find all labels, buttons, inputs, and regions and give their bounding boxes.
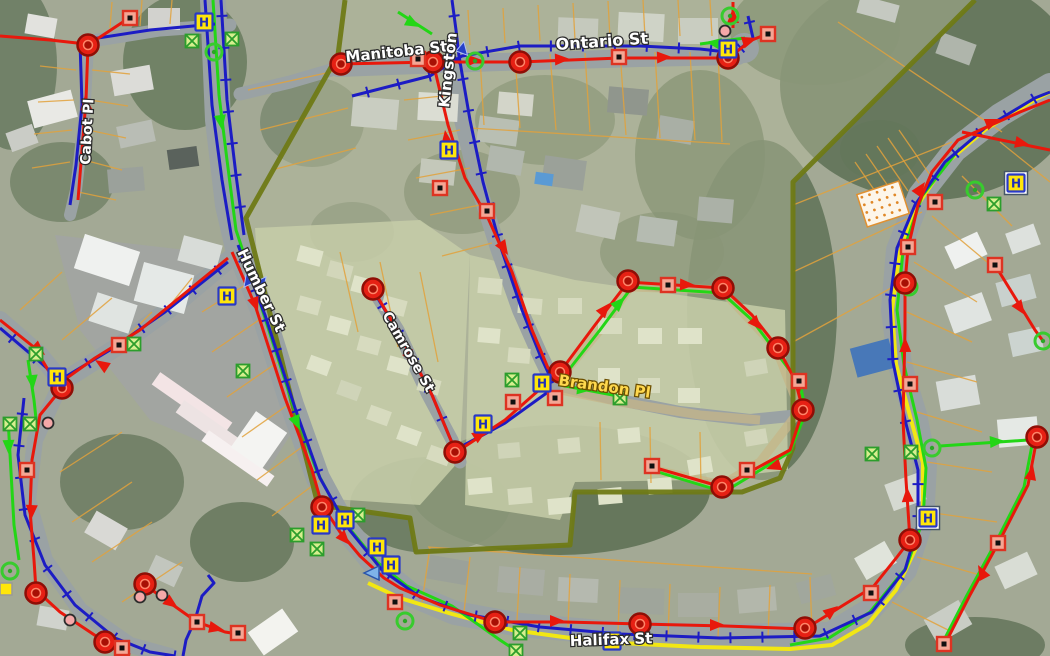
vegetation-patch <box>60 434 184 530</box>
node-inner <box>636 620 645 629</box>
building-roof <box>507 487 532 505</box>
valve-icon[interactable] <box>4 418 17 431</box>
service-point-icon[interactable] <box>388 595 402 609</box>
node-inner <box>801 624 810 633</box>
yellow-box <box>0 583 12 595</box>
service-dot <box>797 379 802 384</box>
service-point-icon[interactable] <box>190 615 204 629</box>
valve-icon[interactable] <box>311 543 324 556</box>
hydrant-letter: H <box>723 43 733 57</box>
hydrant-icon[interactable]: H <box>219 288 236 305</box>
hydrant-icon[interactable]: H <box>383 557 400 574</box>
building-roof <box>617 427 640 444</box>
building-roof <box>477 327 500 344</box>
valve-icon[interactable] <box>237 365 250 378</box>
service-tick <box>886 327 897 328</box>
building-roof <box>737 586 777 613</box>
building-roof <box>167 146 199 170</box>
service-dot <box>485 209 490 214</box>
manhole-node-icon[interactable] <box>713 278 734 299</box>
service-dot <box>128 16 133 21</box>
service-dot <box>393 600 398 605</box>
valve-icon[interactable] <box>514 627 527 640</box>
manhole-node-icon[interactable] <box>768 338 789 359</box>
node-inner <box>451 448 460 457</box>
manhole-node-icon[interactable] <box>795 618 816 639</box>
building-roof <box>618 587 665 615</box>
manhole-node-icon[interactable] <box>895 273 916 294</box>
service-dot <box>650 464 655 469</box>
manhole-node-icon[interactable] <box>510 52 531 73</box>
valve-icon[interactable] <box>30 348 43 361</box>
building-roof <box>636 215 677 246</box>
service-tick <box>216 16 227 17</box>
node-inner <box>901 279 910 288</box>
hydrant-letter: H <box>537 377 547 391</box>
vegetation-patch <box>10 142 114 222</box>
hydrant-icon[interactable]: H <box>196 14 213 31</box>
hydrant-letter: H <box>372 541 382 555</box>
building-roof <box>678 388 700 403</box>
service-tick <box>887 359 898 360</box>
service-dot <box>666 283 671 288</box>
manhole-node-icon[interactable] <box>1027 427 1048 448</box>
manhole-node-icon[interactable] <box>363 279 384 300</box>
manhole-node-icon[interactable] <box>793 400 814 421</box>
service-dot <box>869 591 874 596</box>
hydrant-icon[interactable]: H <box>337 512 354 529</box>
ring-dot <box>728 14 732 18</box>
service-point-icon[interactable] <box>20 463 34 477</box>
service-dot <box>511 400 516 405</box>
service-point-icon[interactable] <box>903 377 917 391</box>
yellow-box-fitting-icon[interactable] <box>0 583 12 595</box>
node-inner <box>141 580 150 589</box>
service-point-icon[interactable] <box>928 195 942 209</box>
service-tick <box>227 143 238 144</box>
building-roof <box>107 166 145 193</box>
node-inner <box>369 285 378 294</box>
service-dot <box>942 642 947 647</box>
hydrant-letter: H <box>52 371 62 385</box>
valve-icon[interactable] <box>510 645 523 656</box>
manhole-node-icon[interactable] <box>78 35 99 56</box>
fitting-circle <box>135 592 146 603</box>
ring-dot <box>8 569 12 573</box>
valve-icon[interactable] <box>24 418 37 431</box>
building-roof <box>638 328 662 344</box>
service-point-icon[interactable] <box>123 11 137 25</box>
fitting-circle <box>65 615 76 626</box>
hydrant-letter: H <box>316 519 326 533</box>
fitting-point-icon[interactable] <box>135 592 146 603</box>
valve-icon[interactable] <box>226 33 239 46</box>
hydrant-letter: H <box>222 290 232 304</box>
fitting-point-icon[interactable] <box>720 26 731 37</box>
building-roof <box>497 566 545 596</box>
hydrant-icon[interactable]: H <box>369 539 386 556</box>
service-point-icon[interactable] <box>864 586 878 600</box>
fitting-circle <box>720 26 731 37</box>
valve-icon[interactable] <box>988 198 1001 211</box>
node-inner <box>719 284 728 293</box>
valve-icon[interactable] <box>291 529 304 542</box>
hydrant-icon[interactable]: H <box>475 416 492 433</box>
hydrant-letter: H <box>340 514 350 528</box>
service-dot <box>745 468 750 473</box>
service-dot <box>25 468 30 473</box>
node-inner <box>718 483 727 492</box>
service-point-icon[interactable] <box>761 27 775 41</box>
service-point-icon[interactable] <box>661 278 675 292</box>
service-point-icon[interactable] <box>991 536 1005 550</box>
node-inner <box>101 638 110 647</box>
valve-icon[interactable] <box>506 374 519 387</box>
service-point-icon[interactable] <box>112 338 126 352</box>
building-roof <box>497 92 534 117</box>
hydrant-icon[interactable]: H <box>441 142 458 159</box>
node-inner <box>429 58 438 67</box>
service-tick <box>679 42 680 53</box>
hydrant-icon[interactable]: H <box>534 375 551 392</box>
building-roof <box>557 577 598 603</box>
hydrant-icon[interactable]: H <box>917 507 940 530</box>
manhole-node-icon[interactable] <box>26 583 47 604</box>
ring-dot <box>403 619 407 623</box>
service-dot <box>996 541 1001 546</box>
building-roof <box>497 442 520 459</box>
manhole-node-icon[interactable] <box>95 632 116 653</box>
service-tick <box>220 80 231 81</box>
node-inner <box>906 536 915 545</box>
fitting-point-icon[interactable] <box>157 590 168 601</box>
service-dot <box>993 263 998 268</box>
service-tick <box>710 45 711 56</box>
fitting-point-icon[interactable] <box>65 615 76 626</box>
valve-icon[interactable] <box>128 338 141 351</box>
hydrant-icon[interactable]: H <box>49 369 66 386</box>
node-inner <box>516 58 525 67</box>
street-label: Halifax St <box>570 629 653 650</box>
node-inner <box>624 277 633 286</box>
ring-dot <box>973 188 977 192</box>
ring-dot <box>212 50 216 54</box>
building-roof <box>678 593 718 617</box>
service-tick <box>17 413 28 414</box>
service-dot <box>766 32 771 37</box>
service-point-icon[interactable] <box>937 637 951 651</box>
building-roof <box>607 86 649 115</box>
service-point-icon[interactable] <box>231 626 245 640</box>
manhole-node-icon[interactable] <box>445 442 466 463</box>
building-roof <box>547 497 572 515</box>
service-dot <box>438 186 443 191</box>
hydrant-letter: H <box>386 559 396 573</box>
service-point-icon[interactable] <box>506 395 520 409</box>
node-inner <box>774 344 783 353</box>
building-roof <box>534 172 553 186</box>
service-dot <box>908 382 913 387</box>
building-roof <box>477 277 502 295</box>
service-dot <box>236 631 241 636</box>
building-roof <box>467 477 492 495</box>
hydrant-icon[interactable]: H <box>720 41 737 58</box>
service-point-icon[interactable] <box>645 459 659 473</box>
vegetation-patch <box>190 502 294 582</box>
valve-icon[interactable] <box>866 448 879 461</box>
service-point-icon[interactable] <box>115 641 129 655</box>
service-point-icon[interactable] <box>548 391 562 405</box>
service-dot <box>617 55 622 60</box>
service-dot <box>553 396 558 401</box>
hydrant-letter: H <box>199 16 209 30</box>
service-tick <box>223 111 234 112</box>
service-tick <box>14 445 25 446</box>
building-roof <box>558 298 582 314</box>
building-roof <box>697 197 734 224</box>
building-roof <box>351 96 399 130</box>
hydrant-letter: H <box>1011 177 1021 191</box>
service-point-icon[interactable] <box>740 463 754 477</box>
node-inner <box>491 618 500 627</box>
hydrant-icon[interactable]: H <box>313 517 330 534</box>
hydrant-letter: H <box>444 144 454 158</box>
service-dot <box>906 245 911 250</box>
valve-icon[interactable] <box>905 446 918 459</box>
service-point-icon[interactable] <box>988 258 1002 272</box>
map-svg: HHHHHHHHHHHHHH Manitoba StOntario StKing… <box>0 0 1050 656</box>
node-inner <box>337 60 346 69</box>
fitting-point-icon[interactable] <box>43 418 54 429</box>
service-dot <box>120 646 125 651</box>
service-point-icon[interactable] <box>612 50 626 64</box>
manhole-node-icon[interactable] <box>712 477 733 498</box>
fitting-circle <box>43 418 54 429</box>
hydrant-letter: H <box>478 418 488 432</box>
service-dot <box>117 343 122 348</box>
node-inner <box>32 589 41 598</box>
manhole-node-icon[interactable] <box>312 497 333 518</box>
service-dot <box>195 620 200 625</box>
node-inner <box>1033 433 1042 442</box>
manhole-node-icon[interactable] <box>485 612 506 633</box>
valve-icon[interactable] <box>186 35 199 48</box>
fitting-circle <box>157 590 168 601</box>
building-roof <box>507 347 530 364</box>
node-inner <box>84 41 93 50</box>
service-point-icon[interactable] <box>433 181 447 195</box>
service-point-icon[interactable] <box>480 204 494 218</box>
building-roof <box>557 437 580 454</box>
gis-map-viewport[interactable]: HHHHHHHHHHHHHH Manitoba StOntario StKing… <box>0 0 1050 656</box>
service-dot <box>933 200 938 205</box>
service-point-icon[interactable] <box>901 240 915 254</box>
hydrant-letter: H <box>923 512 933 526</box>
hydrant-icon[interactable]: H <box>1005 172 1028 195</box>
ring-dot <box>930 446 934 450</box>
ring-dot <box>473 59 477 63</box>
manhole-node-icon[interactable] <box>618 271 639 292</box>
service-point-icon[interactable] <box>792 374 806 388</box>
ring-dot <box>1041 339 1045 343</box>
node-inner <box>799 406 808 415</box>
node-inner <box>318 503 327 512</box>
building-roof <box>678 328 702 344</box>
manhole-node-icon[interactable] <box>900 530 921 551</box>
